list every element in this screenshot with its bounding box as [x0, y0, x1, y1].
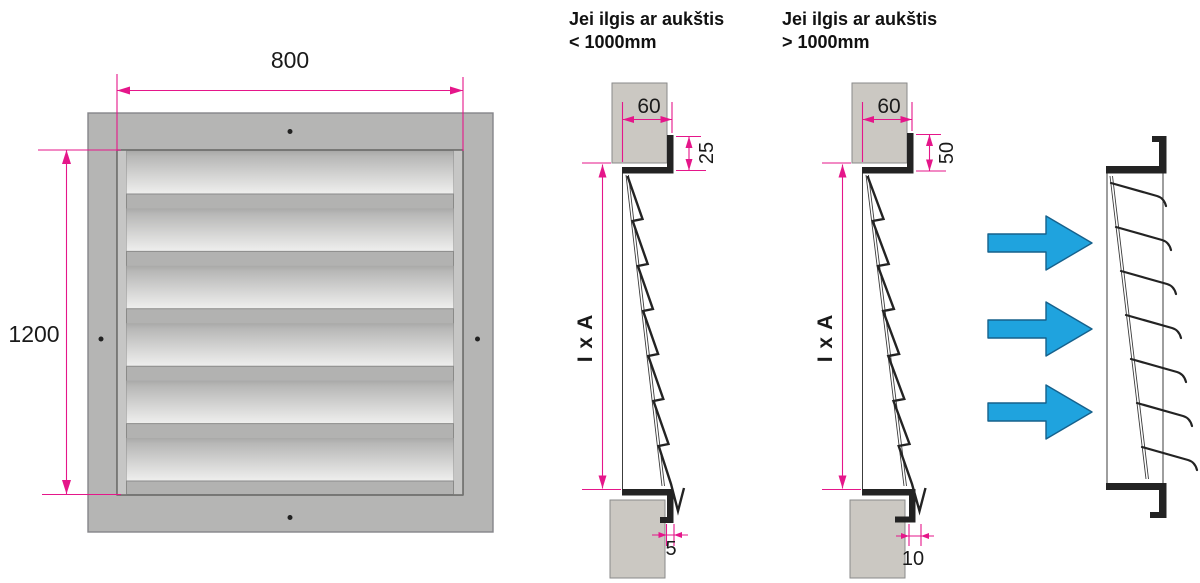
section-large-span-label: I x A — [815, 298, 839, 378]
side-view — [988, 136, 1197, 518]
louver-blade — [1137, 403, 1192, 426]
wall-block-bottom — [850, 500, 905, 578]
louver-blade — [1111, 183, 1166, 206]
airflow-arrow-icon — [988, 216, 1092, 270]
wall-block-bottom — [610, 500, 665, 578]
mounting-dot — [475, 337, 480, 342]
louver-blade — [1131, 359, 1186, 382]
louver-blade — [1126, 315, 1181, 338]
section-large-depth-label: 60 — [867, 96, 911, 117]
louver-slat — [127, 381, 454, 424]
section-large-gap-label: 10 — [898, 549, 928, 569]
louver-blades — [1111, 183, 1197, 470]
section-small — [582, 83, 706, 578]
louver-blade — [1121, 271, 1176, 294]
section-large — [822, 83, 946, 578]
mounting-bracket-top — [1106, 136, 1167, 174]
side-channel-right — [454, 151, 463, 495]
frame-slant — [1110, 176, 1149, 479]
section-small-flange-label: 25 — [697, 131, 717, 175]
condition-small-title: Jei ilgis ar aukštis < 1000mm — [569, 8, 724, 55]
mounting-dot — [99, 337, 104, 342]
louver-slat — [127, 208, 454, 251]
airflow-arrow-icon — [988, 302, 1092, 356]
side-channel-left — [118, 151, 127, 495]
mounting-dot — [288, 129, 293, 134]
airflow-arrow-icon — [988, 385, 1092, 439]
mounting-bracket-bottom — [1106, 483, 1167, 518]
louver-slat — [127, 323, 454, 366]
section-large-flange-label: 50 — [937, 131, 957, 175]
section-small-gap-label: 5 — [659, 539, 683, 559]
louver-profile-large — [863, 174, 926, 512]
section-small-span-label: I x A — [575, 298, 599, 378]
louver-slat — [127, 266, 454, 309]
airflow-arrows — [988, 216, 1092, 439]
louver-technical-drawing: Jei ilgis ar aukštis < 1000mm Jei ilgis … — [0, 0, 1200, 583]
louver-slat — [127, 438, 454, 481]
front-height-label: 1200 — [4, 323, 64, 346]
front-width-label: 800 — [250, 49, 330, 72]
louver-slat — [127, 151, 454, 194]
condition-large-title: Jei ilgis ar aukštis > 1000mm — [782, 8, 937, 55]
section-small-depth-label: 60 — [627, 96, 671, 117]
front-view — [38, 74, 493, 532]
louver-profile-small — [623, 174, 685, 512]
louver-blade — [1142, 447, 1197, 470]
mounting-dot — [288, 515, 293, 520]
drawing-canvas — [0, 0, 1200, 583]
